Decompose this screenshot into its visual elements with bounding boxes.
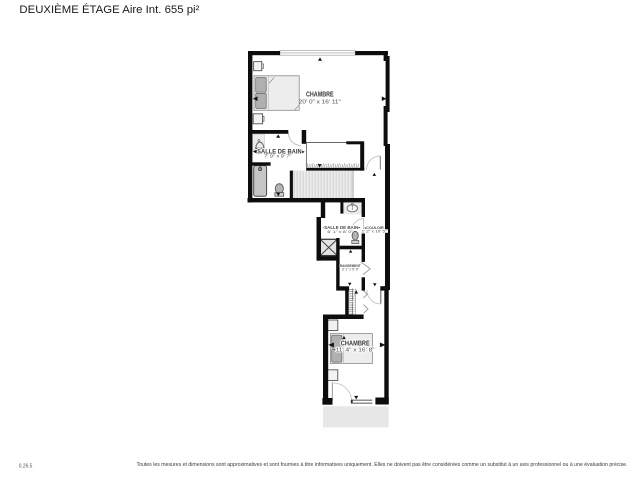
svg-text:CHAMBRE: CHAMBRE (306, 90, 334, 99)
svg-text:0.26.5: 0.26.5 (19, 463, 33, 469)
svg-text:Toutes les mesures et dimensio: Toutes les mesures et dimensions sont ap… (137, 462, 628, 468)
svg-text:11' 4" x 16' 8": 11' 4" x 16' 8" (336, 347, 375, 353)
svg-text:1' 2" x 10' 5": 1' 2" x 10' 5" (362, 230, 388, 234)
svg-text:CHAMBRE: CHAMBRE (341, 339, 370, 348)
svg-text:6' 1" x 8' 0": 6' 1" x 8' 0" (327, 230, 353, 234)
svg-text:7' 9" x 9' 7": 7' 9" x 9' 7" (264, 154, 291, 159)
svg-text:20' 0" x 16' 11": 20' 0" x 16' 11" (299, 100, 341, 106)
svg-text:DEUXIÈME ÉTAGE Aire Int. 655 p: DEUXIÈME ÉTAGE Aire Int. 655 pi² (19, 3, 199, 16)
svg-text:3' 1" x 5' 9": 3' 1" x 5' 9" (342, 268, 360, 272)
